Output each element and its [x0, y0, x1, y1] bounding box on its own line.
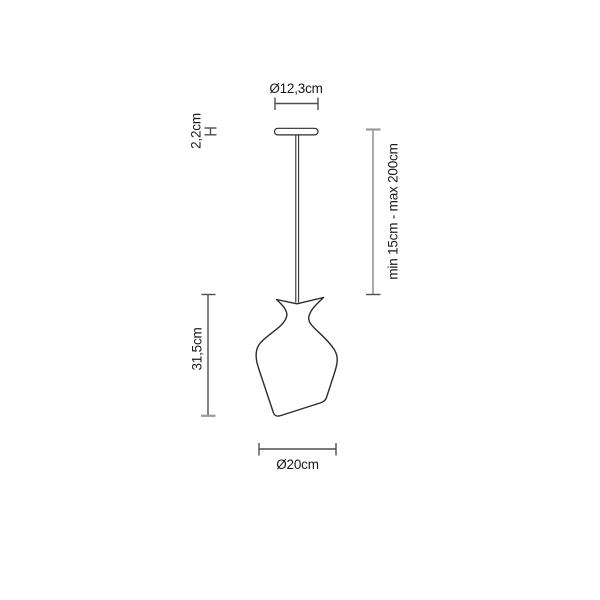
lamp-technical-drawing: Ø12,3cm 2,2cm min 15cm - max 200cm 31,5c…: [0, 0, 600, 600]
drawing-canvas: Ø12,3cm 2,2cm min 15cm - max 200cm 31,5c…: [0, 0, 600, 600]
shade-diameter-label: Ø20cm: [276, 457, 319, 472]
dimension-suspension-length: min 15cm - max 200cm: [366, 130, 401, 296]
suspension-rod: [296, 135, 299, 303]
dimension-shade-diameter: Ø20cm: [259, 443, 336, 472]
dimension-canopy-diameter: Ø12,3cm: [269, 81, 322, 110]
shade-outline: [256, 298, 337, 417]
shade-height-label: 31,5cm: [190, 327, 205, 370]
canopy-outline: [275, 128, 319, 135]
dimension-canopy-thickness: 2,2cm: [189, 113, 217, 149]
canopy-thickness-label: 2,2cm: [189, 113, 204, 149]
canopy-diameter-label: Ø12,3cm: [269, 81, 322, 96]
suspension-length-label: min 15cm - max 200cm: [386, 143, 401, 279]
dimension-shade-height: 31,5cm: [190, 295, 216, 417]
